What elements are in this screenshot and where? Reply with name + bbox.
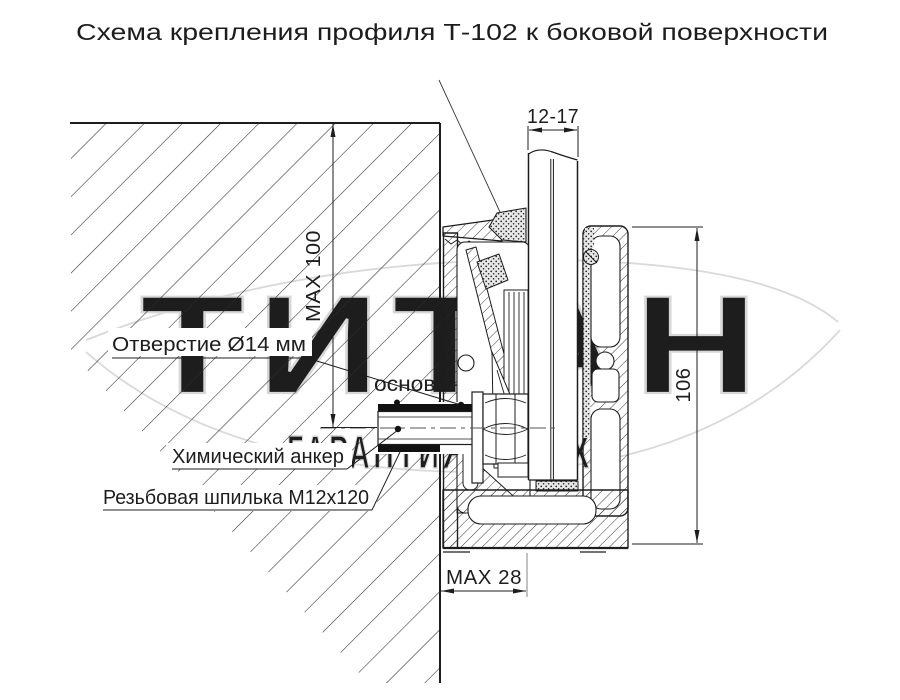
arrow-down — [695, 530, 700, 543]
arrow-right — [513, 589, 526, 594]
dimension-12-17: 12-17 — [527, 106, 579, 157]
arrow-left — [529, 128, 542, 133]
seal-leader-line — [439, 80, 500, 212]
dimension-106: 106 — [632, 227, 703, 544]
washer — [472, 392, 483, 483]
leader-dot — [395, 426, 401, 432]
glass-panel — [529, 150, 579, 491]
arrow-left — [441, 589, 454, 594]
dimension-max-28: MAX 28 — [441, 553, 527, 597]
screw-boss — [458, 355, 474, 371]
dim-12-17-text: 12-17 — [527, 106, 579, 128]
base-slot — [468, 496, 596, 524]
dim-106-text: 106 — [673, 368, 695, 403]
nut-step — [498, 463, 528, 477]
hex-nut — [483, 394, 528, 464]
drawing-sheet: ТИТАН основан в 2005 ГАРАНТИЯ УСПЕХА Схе… — [0, 0, 900, 700]
leader-dot — [394, 400, 400, 406]
callout-hole-text: Отверстие Ø14 мм — [112, 333, 306, 356]
profile-right-wall — [583, 226, 628, 516]
profile-assembly — [439, 80, 628, 552]
callout-chemical-anchor-text: Химический анкер — [172, 445, 344, 468]
wall-channel-mid — [592, 369, 619, 402]
arrow-up — [695, 228, 700, 241]
chemical-anchor-bottom — [378, 445, 440, 453]
technical-drawing: ТИТАН основан в 2005 ГАРАНТИЯ УСПЕХА Схе… — [0, 0, 900, 700]
profile-base — [443, 490, 628, 552]
dim-max-28-text: MAX 28 — [446, 567, 522, 589]
leader-dot — [458, 402, 464, 408]
dim-max-100-text: MAX 100 — [303, 230, 325, 322]
page-title: Схема крепления профиля Т-102 к боковой … — [76, 19, 828, 45]
wall-screw-channel — [596, 352, 614, 370]
arrow-right — [564, 128, 577, 133]
callout-threaded-stud-text: Резьбовая шпилька М12х120 — [103, 486, 369, 509]
top-right-seal — [585, 228, 594, 248]
